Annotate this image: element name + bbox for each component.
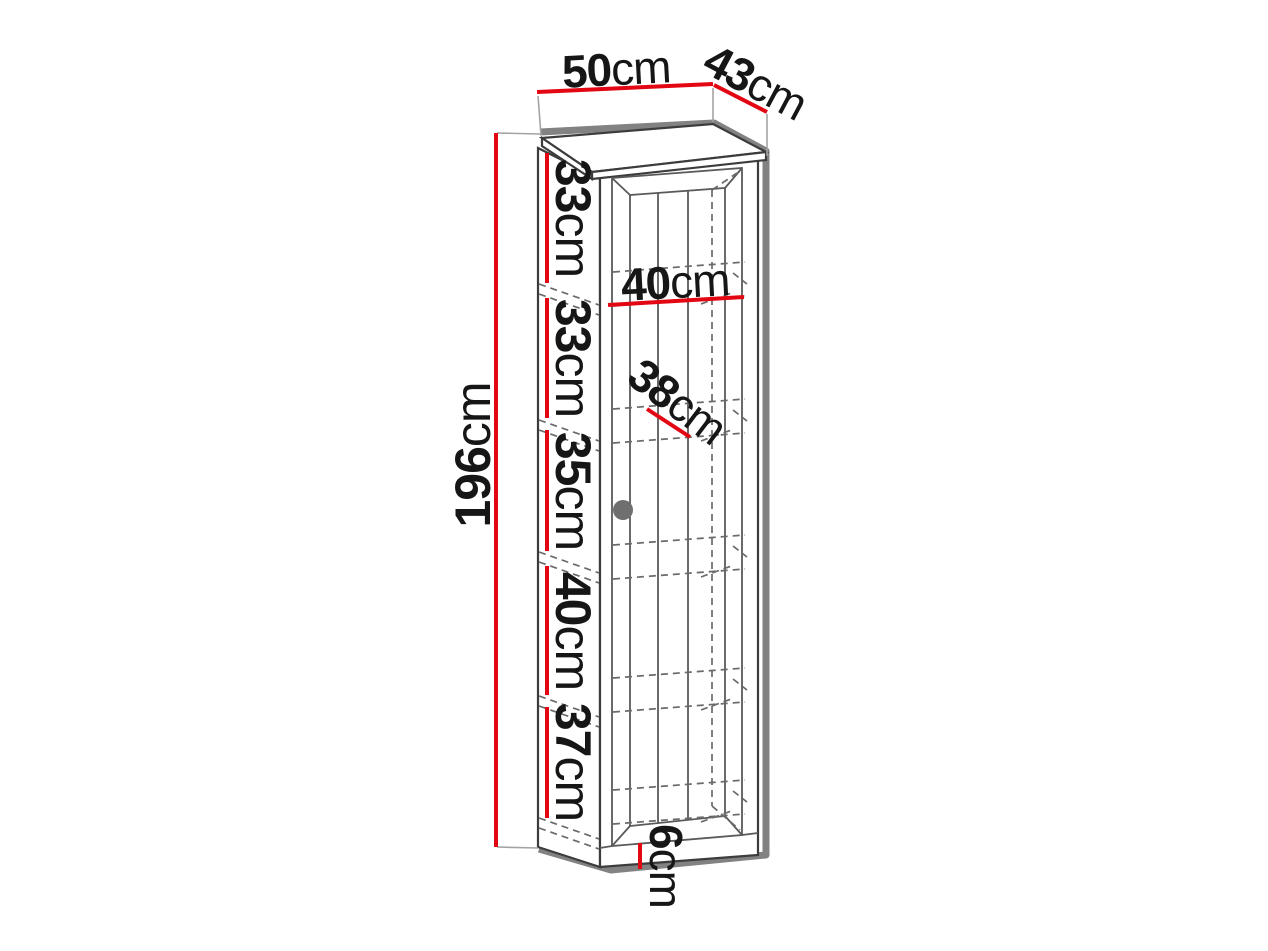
dimension-label-top-width: 50cm [561,40,672,98]
dim-unit: cm [445,382,501,447]
dim-value: 196 [445,447,501,527]
dim-value: 40 [545,572,601,626]
dimension-label-base-height: 6cm [640,824,692,908]
dim-value: 40 [620,256,672,311]
dim-value: 50 [561,43,613,98]
dim-value: 35 [545,432,601,486]
dimension-label-section-5: 37cm [545,703,601,821]
dim-value: 37 [545,703,601,757]
dimension-label-section-4: 40cm [545,572,601,690]
dim-value: 6 [640,824,692,849]
extension-height-bottom [497,847,538,848]
dimension-label-section-3: 35cm [545,432,601,550]
dimension-label-interior-width: 40cm [620,253,731,311]
extension-height-top [497,133,540,134]
dim-unit: cm [545,352,601,417]
dim-unit: cm [640,849,692,908]
dim-value: 33 [545,299,601,353]
dimension-label-section-1: 33cm [545,159,601,277]
dimension-label-section-2: 33cm [545,299,601,417]
dimension-label-total-height: 196cm [445,382,501,527]
furniture-dimension-diagram: 50cm 43cm 196cm 33cm 33cm 35cm 40cm 37cm… [0,0,1268,951]
dim-unit: cm [669,253,731,308]
dim-unit: cm [545,756,601,821]
dim-unit: cm [610,40,672,95]
door-knob [613,500,633,520]
dim-value: 33 [545,159,601,213]
dim-unit: cm [545,485,601,550]
dim-unit: cm [545,212,601,277]
dim-unit: cm [545,625,601,690]
extension-width-left [538,96,541,135]
cabinet-diagram-canvas: 50cm 43cm 196cm 33cm 33cm 35cm 40cm 37cm… [0,0,1268,951]
